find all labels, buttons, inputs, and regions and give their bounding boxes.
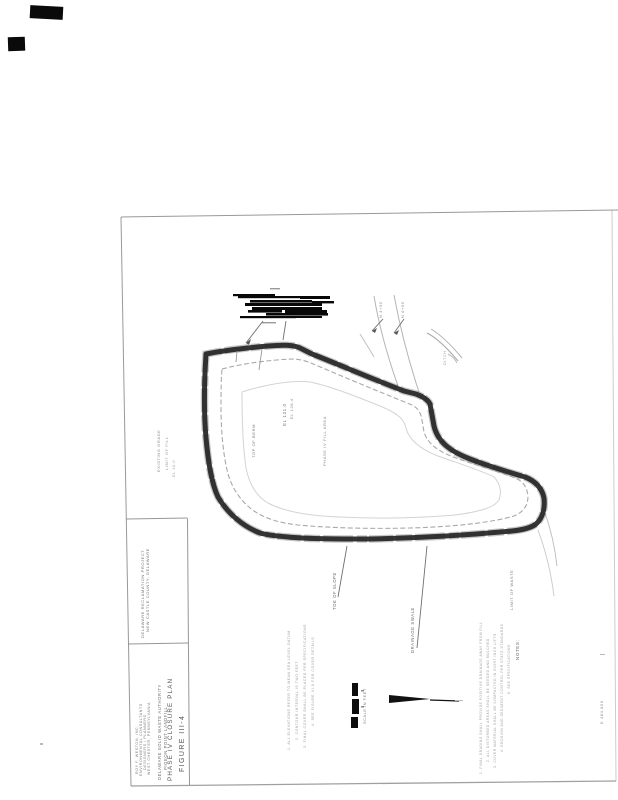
north-arrow: [389, 695, 459, 703]
note-line: 4. SEE FIGURE III-5 FOR COVER DETAILS: [312, 637, 315, 726]
existing-feature-lines: [360, 295, 557, 596]
map-label: EXISTING GRADE: [157, 430, 161, 472]
org-line: DELAWARE SOLID WASTE AUTHORITY: [158, 684, 162, 780]
drawing-title: PHASE IV CLOSURE PLAN: [168, 678, 174, 781]
scale-label: SCALE IN FEET: [364, 688, 368, 724]
map-label: TOP OF BERM: [252, 424, 256, 458]
callout-label: TOE OF SLOPE: [333, 572, 337, 610]
map-label: PHASE IV FILL AREA: [323, 416, 327, 466]
scanned-drawing-page: EL 131.0 EL 128.4 TOP OF BERM PHASE IV F…: [0, 0, 618, 800]
map-label: EL 128.4: [290, 398, 294, 419]
note-line: 2. CONTOUR INTERVAL IS TWO FEET: [296, 661, 299, 740]
contour-lines: [221, 359, 528, 528]
callout-label: DRAINAGE SWALE: [411, 607, 415, 653]
station-label: N 4+00: [379, 301, 383, 318]
drawing-linework: [0, 0, 618, 800]
note-line: 2. ALL DISTURBED AREAS SHALL BE SEEDED A…: [487, 638, 490, 762]
map-label: DITCH: [444, 350, 448, 365]
map-label: EL 10.0: [173, 460, 177, 477]
org-line: PIGEON POINT LANDFILL: [164, 707, 168, 770]
station-label: N 6+00: [401, 301, 405, 318]
scan-specks: [40, 654, 605, 745]
project-line: NEW CASTLE COUNTY, DELAWARE: [146, 548, 150, 632]
callout-label: LIMIT OF WASTE: [510, 570, 514, 610]
scan-artifact-marks: [8, 5, 64, 51]
map-label: EL 131.0: [283, 403, 288, 426]
note-line: 1. FINAL GRADING SHALL PROVIDE POSITIVE …: [480, 622, 483, 774]
note-line: 3. COVER MATERIAL SHALL BE COMPACTED IN …: [494, 633, 497, 768]
figure-number: FIGURE III-4: [179, 715, 186, 772]
firm-line: WEST CHESTER, PENNSYLVANIA: [148, 702, 152, 775]
note-line: 4. EROSION AND SEDIMENT CONTROL PER STAT…: [501, 624, 504, 752]
note-line: 5. SEE SPECIFICATIONS: [508, 644, 511, 694]
coordinate-label: E 484,500: [600, 700, 604, 724]
redacted-text-block: [233, 288, 334, 323]
note-line: 3. FINAL COVER SHALL BE PLACED PER SPECI…: [304, 624, 307, 748]
map-label: LIMIT OF FILL: [165, 436, 169, 470]
note-line: 1. ALL ELEVATIONS REFER TO MEAN SEA LEVE…: [288, 630, 291, 750]
notes-header: NOTES:: [516, 640, 521, 660]
